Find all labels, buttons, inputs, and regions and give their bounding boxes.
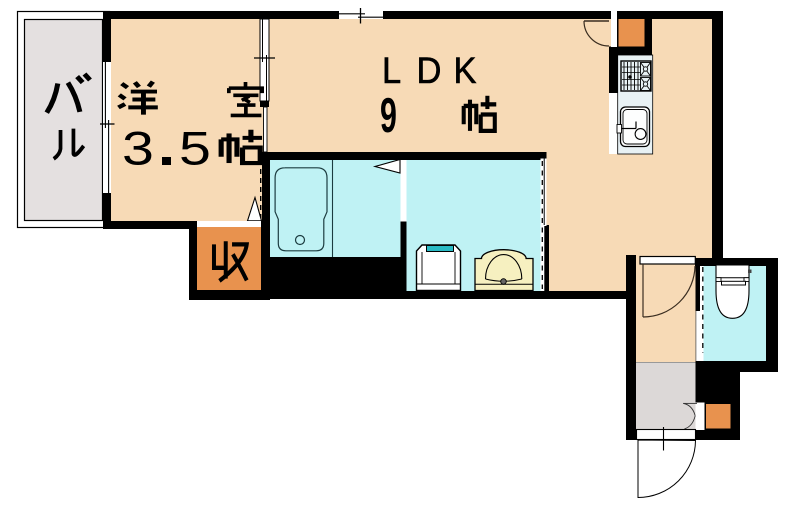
svg-text:K: K	[453, 49, 476, 92]
svg-text:5: 5	[179, 123, 211, 175]
svg-text:3: 3	[122, 123, 154, 175]
svg-text:L: L	[382, 49, 401, 92]
svg-text:D: D	[417, 49, 442, 92]
svg-text:9: 9	[380, 88, 397, 143]
